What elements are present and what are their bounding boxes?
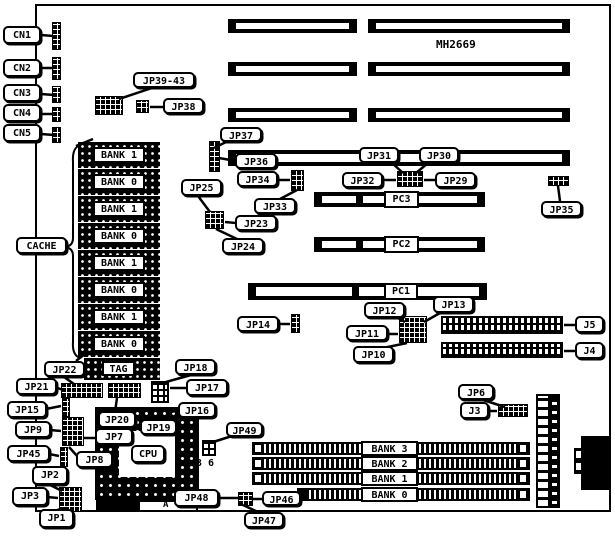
j3-callout: J3 <box>460 402 489 419</box>
jp39-43-jumper <box>95 96 123 115</box>
jp21-jp22-jumper <box>61 383 103 398</box>
jp9-callout: JP9 <box>15 421 51 438</box>
jp11-callout: JP11 <box>346 325 388 341</box>
j3-jp6-jumper <box>498 404 528 417</box>
jp35-jumper <box>548 176 569 186</box>
cn4-callout: CN4 <box>3 104 41 122</box>
cn1-connector <box>52 22 61 50</box>
jp29-callout: JP29 <box>435 172 476 188</box>
cn1-callout: CN1 <box>3 26 41 44</box>
tag-chip-label: TAG <box>102 361 135 376</box>
jp7-callout: JP7 <box>95 428 133 445</box>
isa-slot-1-right <box>368 19 570 33</box>
pc3-key-notch <box>356 194 363 205</box>
jp21-callout: JP21 <box>16 378 57 395</box>
jp36-callout: JP36 <box>235 153 277 169</box>
cache-chip-2-label: BANK 0 <box>93 174 145 190</box>
cn3-connector <box>52 86 61 103</box>
cn5-callout: CN5 <box>3 124 41 142</box>
jp10-jp13-jumper <box>399 316 427 343</box>
jp23-jp25-jumper <box>205 211 224 229</box>
jp23-callout: JP23 <box>235 215 277 231</box>
simm-bank3-label: BANK 3 <box>361 441 418 456</box>
isa-slot-3-left <box>228 108 357 122</box>
jp14-jumper <box>291 314 300 333</box>
jp17-callout: JP17 <box>186 379 228 396</box>
jp35-callout: JP35 <box>541 201 582 217</box>
jp49-pin3-label: 3 <box>196 459 202 469</box>
jp36-jp37-jumper <box>209 141 220 172</box>
jp2-callout: JP2 <box>32 466 68 485</box>
cache-chip-5-label: BANK 1 <box>93 255 145 271</box>
cn5-connector <box>52 127 61 143</box>
cn4-connector <box>52 107 61 122</box>
jp39-43-callout: JP39-43 <box>133 72 195 88</box>
isa-slot-2-right <box>368 62 570 76</box>
cn2-connector <box>52 57 61 80</box>
pc2-label: PC2 <box>384 236 419 253</box>
j5-callout: J5 <box>575 316 604 333</box>
simm-bank1-label: BANK 1 <box>361 471 418 486</box>
jp38-jumper <box>136 100 149 113</box>
pc1-key-notch <box>352 285 359 298</box>
jp19-callout: JP19 <box>140 419 177 435</box>
j4-callout: J4 <box>575 342 604 359</box>
keyboard-connector <box>581 436 611 490</box>
j4-header <box>441 342 563 358</box>
jp10-callout: JP10 <box>353 346 394 363</box>
jp15-jumper <box>62 398 70 417</box>
cn2-callout: CN2 <box>3 59 41 77</box>
power-connector <box>536 394 560 508</box>
jp8-callout: JP8 <box>76 451 113 468</box>
jp15-callout: JP15 <box>7 401 47 418</box>
jp1-callout: JP1 <box>39 509 74 528</box>
jp17-jp18-jumper <box>151 381 169 403</box>
jp24-callout: JP24 <box>222 238 264 254</box>
jp18-callout: JP18 <box>175 359 216 375</box>
chip-bar-mark: A <box>163 501 168 510</box>
jp46-jp47-jp48-jumper <box>238 492 253 506</box>
jp49-jumper <box>202 440 216 456</box>
cache-chip-1-label: BANK 1 <box>93 147 145 163</box>
pc1-label: PC1 <box>384 283 418 300</box>
jp45-jumper <box>60 447 68 467</box>
jp47-callout: JP47 <box>244 512 284 528</box>
simm-latch <box>519 444 527 453</box>
cpu-label: CPU <box>131 445 165 463</box>
jp6-callout: JP6 <box>458 384 494 400</box>
jp49-callout: JP49 <box>226 422 263 437</box>
jp12-callout: JP12 <box>364 302 405 318</box>
jp33-callout: JP33 <box>254 198 296 214</box>
jp32-callout: JP32 <box>342 172 383 188</box>
jp34-callout: JP34 <box>237 171 278 187</box>
motherboard-diagram: MH2669 PC3 PC2 PC1 CN1 CN2 CN3 CN4 CN5 J… <box>0 0 615 540</box>
jp29-jp32-jumper <box>397 171 423 187</box>
power-connector-pins-right <box>552 398 557 504</box>
simm-latch <box>254 474 262 483</box>
cache-chip-3-label: BANK 1 <box>93 201 145 217</box>
simm-latch <box>254 444 262 453</box>
jp3-callout: JP3 <box>12 487 48 506</box>
cache-chip-6-label: BANK 0 <box>93 282 145 298</box>
pc2-key-notch <box>356 239 363 250</box>
simm-bank0-label: BANK 0 <box>361 487 418 502</box>
isa-slot-4 <box>228 150 570 166</box>
simm-latch <box>519 474 527 483</box>
power-connector-pins-left <box>538 396 548 506</box>
jp31-callout: JP31 <box>359 147 399 163</box>
cn3-callout: CN3 <box>3 84 41 102</box>
cache-callout: CACHE <box>16 237 67 254</box>
isa-slot-3-right <box>368 108 570 122</box>
jp48-callout: JP48 <box>174 489 219 507</box>
simm-bank2-label: BANK 2 <box>361 456 418 471</box>
keyboard-connector-notch <box>576 463 581 470</box>
jp20-jumper <box>108 383 141 398</box>
jp46-callout: JP46 <box>262 491 301 506</box>
cache-chip-4-label: BANK 0 <box>93 228 145 244</box>
simm-latch <box>254 459 262 468</box>
j5-header <box>441 316 563 334</box>
jp38-callout: JP38 <box>163 98 204 114</box>
jp9-jumper <box>62 417 84 446</box>
jp30-callout: JP30 <box>419 147 459 163</box>
keyboard-connector-notch <box>576 451 581 458</box>
jp37-callout: JP37 <box>220 127 262 142</box>
pc3-label: PC3 <box>384 191 419 208</box>
simm-latch <box>519 490 527 499</box>
jp25-callout: JP25 <box>181 179 222 196</box>
jp45-callout: JP45 <box>7 445 50 462</box>
jp22-callout: JP22 <box>44 361 85 377</box>
jp49-pin6-label: 6 <box>208 459 214 469</box>
chipset-label: MH2669 <box>436 39 476 50</box>
isa-slot-2-left <box>228 62 357 76</box>
jp16-callout: JP16 <box>178 402 216 418</box>
jp20-callout: JP20 <box>98 411 136 428</box>
cache-chip-8-label: BANK 0 <box>93 336 145 352</box>
simm-latch <box>519 459 527 468</box>
jp13-callout: JP13 <box>433 296 474 313</box>
jp14-callout: JP14 <box>237 316 279 332</box>
jp33-jp34-jumper <box>291 170 304 191</box>
cache-chip-7-label: BANK 1 <box>93 309 145 325</box>
isa-slot-1-left <box>228 19 357 33</box>
